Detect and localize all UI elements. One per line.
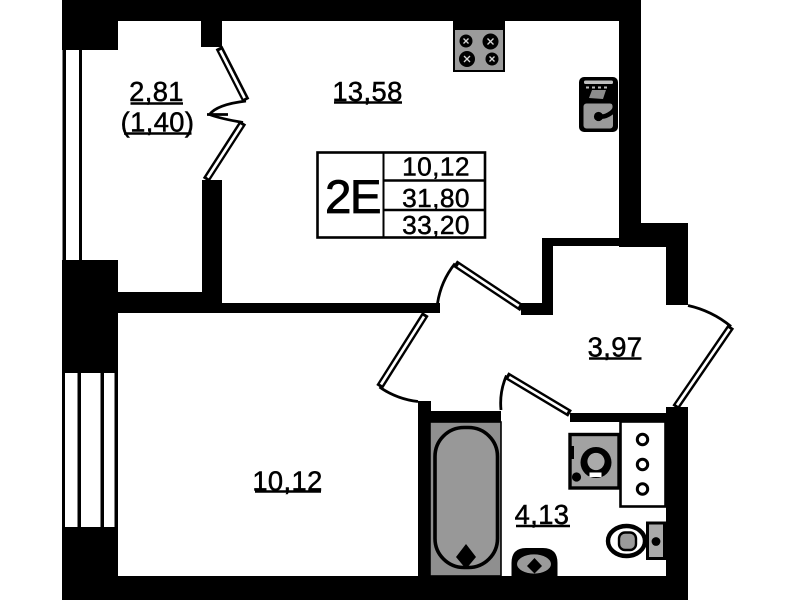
svg-text:10,12: 10,12 bbox=[402, 152, 470, 182]
svg-text:2E: 2E bbox=[325, 171, 380, 224]
svg-text:31,80: 31,80 bbox=[402, 183, 470, 213]
svg-text:33,20: 33,20 bbox=[402, 210, 470, 240]
